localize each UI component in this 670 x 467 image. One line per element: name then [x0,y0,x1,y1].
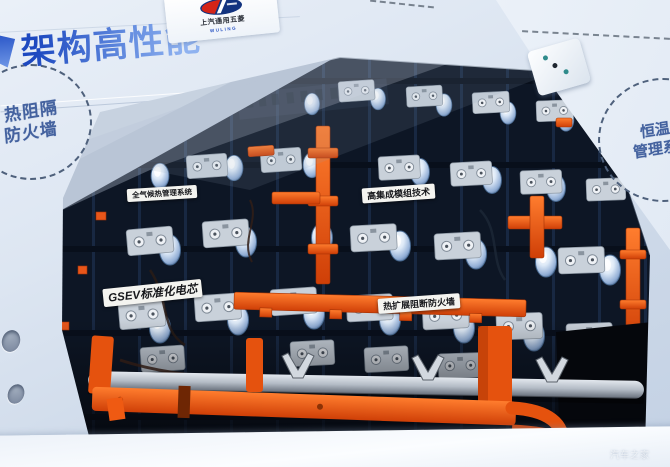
dotted-seam [370,0,434,8]
watermark: 汽车之家 [610,448,650,461]
exhibit-photo: 全气候热管理系统 高集成模组技术 GSEV标准化电芯 热扩展阻断防火墙 热阻隔 … [0,0,670,467]
brand-plate: 上汽通用五菱 WULING [164,0,280,44]
banner-wedge-icon [0,33,17,68]
callout-thermal-firewall: 热阻隔 防火墙 [0,64,92,180]
dotted-seam [522,30,670,40]
dark-dot [552,62,558,68]
teal-dot [542,55,548,61]
stand-hole [0,328,23,354]
teal-dot [563,69,569,75]
stand-hole [5,382,28,407]
